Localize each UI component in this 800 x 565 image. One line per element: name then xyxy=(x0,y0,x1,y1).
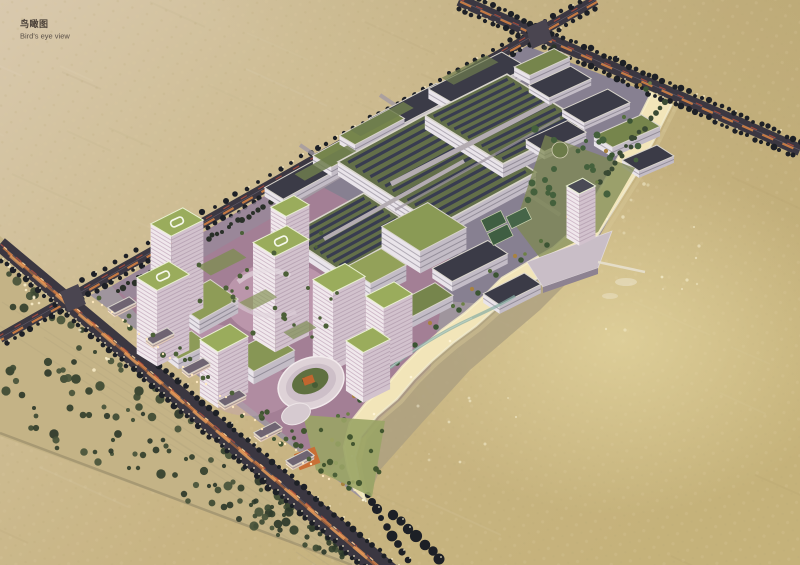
svg-text:鸟瞰图: 鸟瞰图 xyxy=(20,18,49,29)
svg-text:Bird's eye view: Bird's eye view xyxy=(20,32,70,41)
